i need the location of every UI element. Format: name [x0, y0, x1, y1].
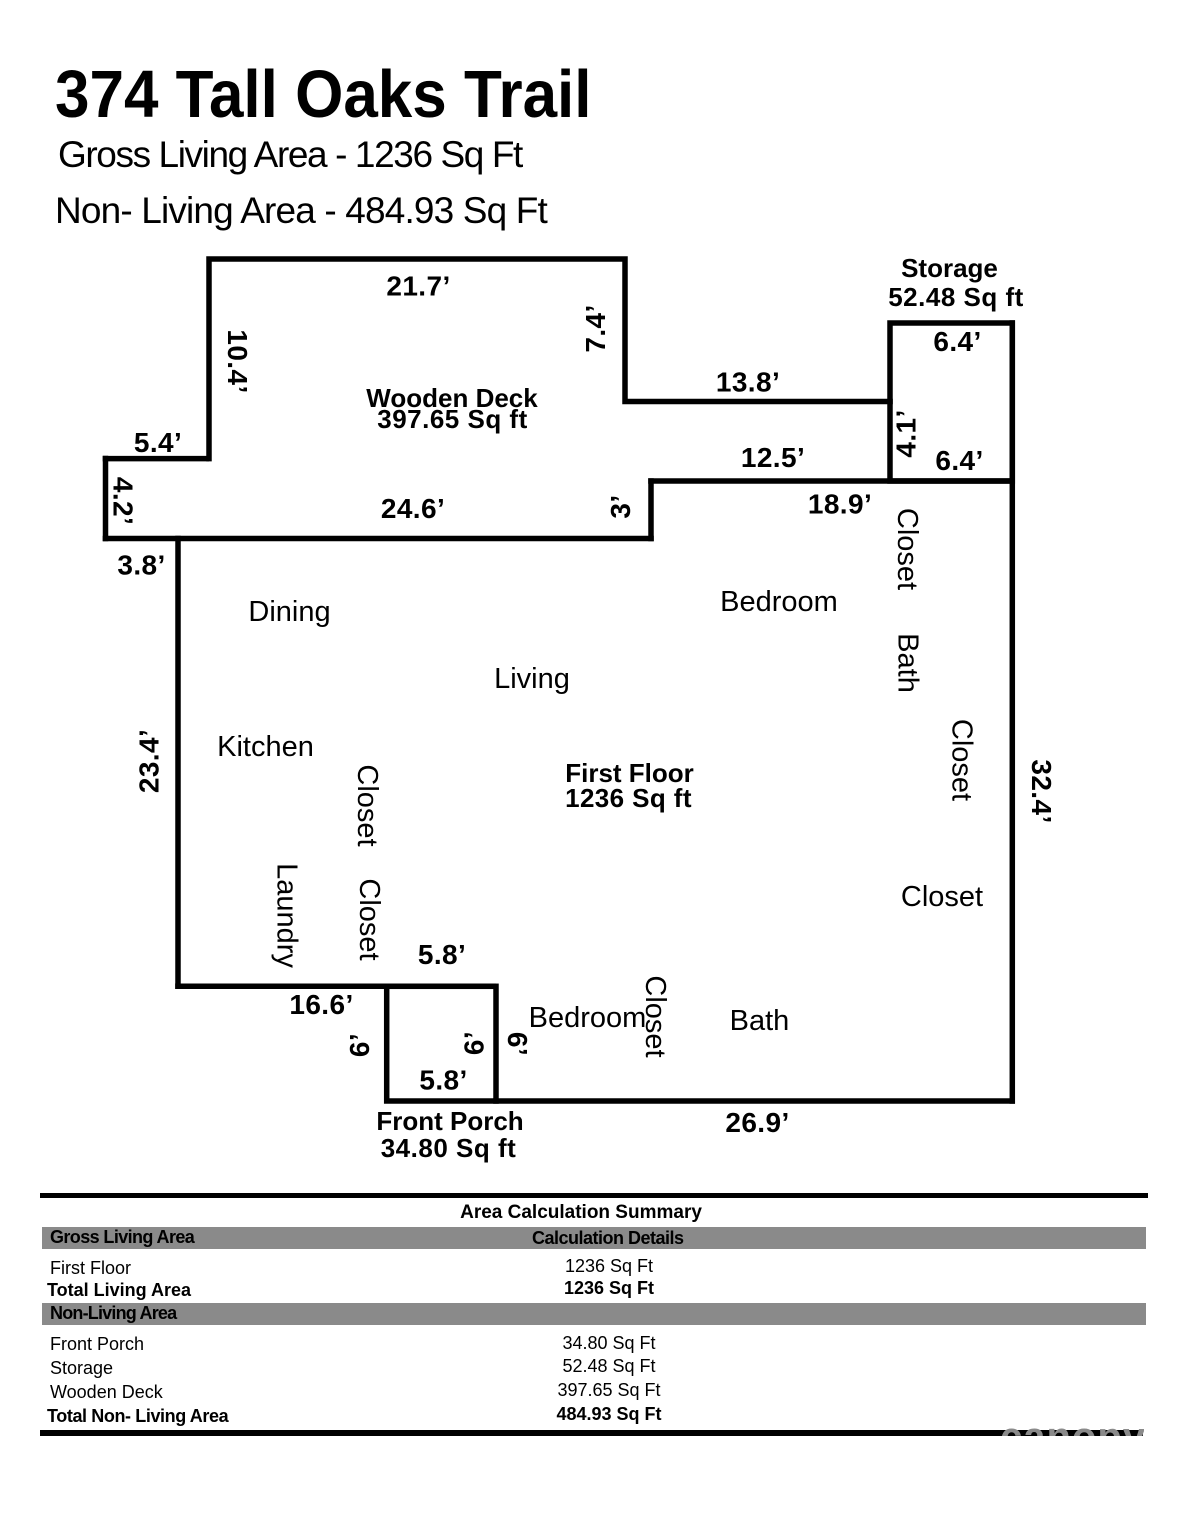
svg-text:canopy: canopy	[1000, 1415, 1146, 1459]
